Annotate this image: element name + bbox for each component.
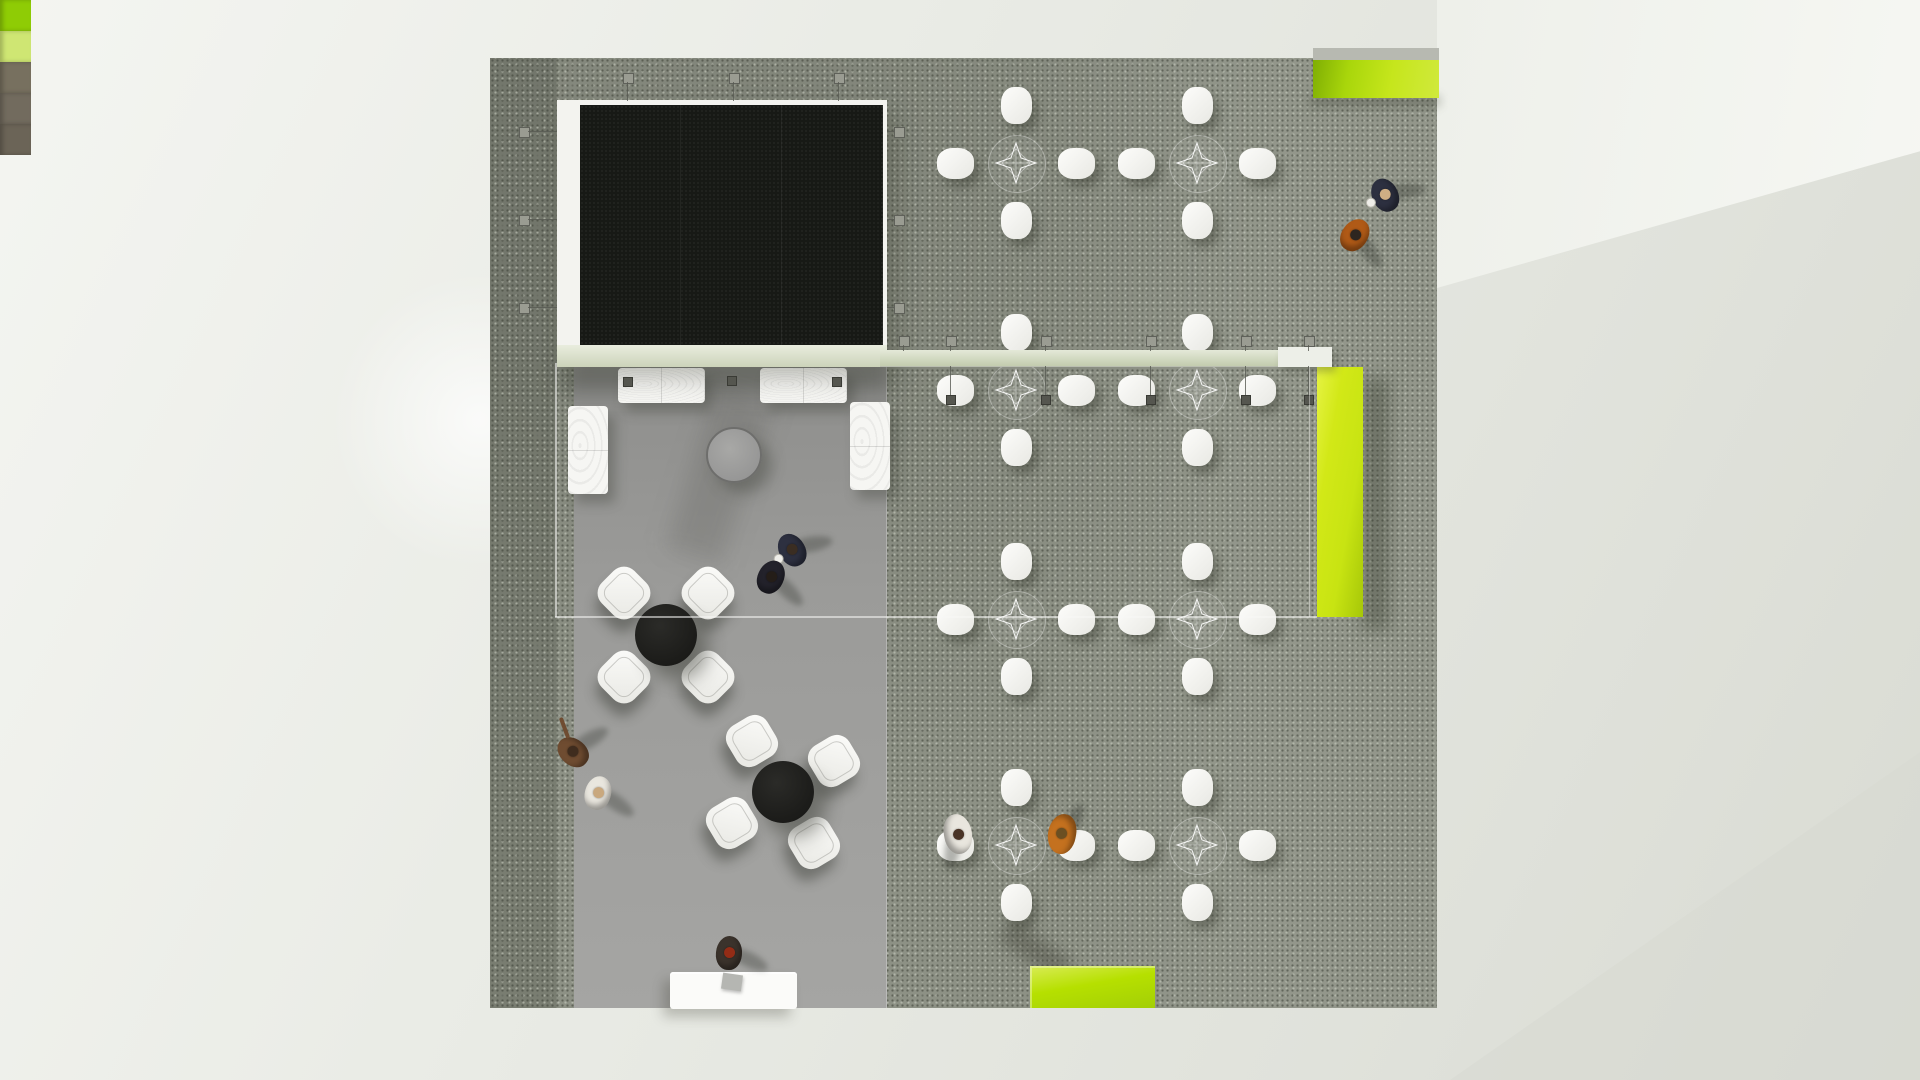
sofa-top-right: [760, 368, 847, 403]
beam-end-cap: [1278, 347, 1332, 367]
stage-front-band: [557, 345, 887, 367]
glass-wall-right-edge: [1309, 367, 1310, 617]
led-screen: [580, 105, 883, 345]
sofa-right: [850, 402, 890, 490]
bottom-green-bench: [1030, 966, 1155, 1008]
floor-shade-wedge: [1450, 660, 1920, 1080]
green-partition-wall: [1317, 367, 1363, 617]
cube-light-green: [0, 31, 31, 62]
cube-green: [0, 0, 31, 31]
top-green-counter: [1313, 60, 1439, 98]
top-green-counter-cap: [1313, 48, 1439, 60]
green-wall-shadow: [1363, 378, 1389, 630]
cube-brown: [0, 62, 31, 93]
sofa-top-left: [618, 368, 705, 403]
cube-brown: [0, 93, 31, 124]
glass-wall-left-edge: [555, 363, 557, 617]
glass-wall-bottom-edge: [555, 616, 1317, 618]
cube-brown: [0, 124, 31, 155]
sofa-left: [568, 406, 608, 494]
round-coffee-table: [706, 427, 762, 483]
counter-bag: [721, 973, 743, 992]
exhibition-floorplan-render: [0, 0, 1920, 1080]
floor-highlight-wedge: [1437, 0, 1920, 360]
suspended-glass-beam: [880, 350, 1332, 367]
